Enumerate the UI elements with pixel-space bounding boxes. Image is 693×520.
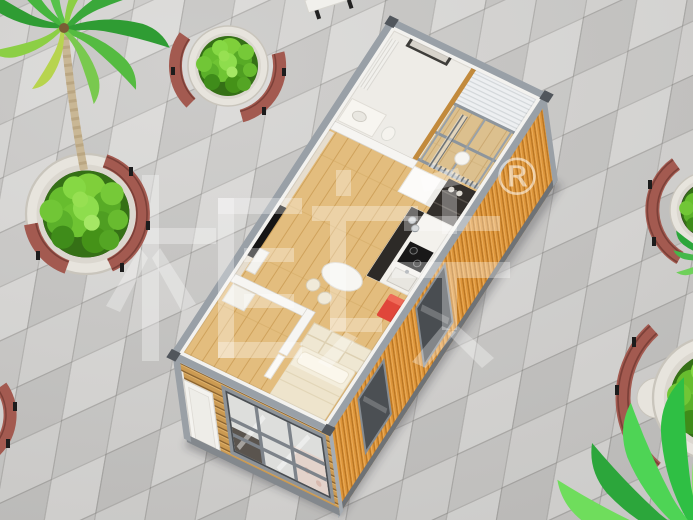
planter-right-upper <box>647 160 693 280</box>
planter-top-center <box>171 26 286 116</box>
bench-top-edge <box>305 0 361 21</box>
registered-mark: ® <box>491 152 543 204</box>
bench-left-edge <box>0 386 17 450</box>
scene-artwork <box>0 0 693 520</box>
planter-top-left <box>0 0 173 274</box>
rendered-scene: ® 柜族 <box>0 0 693 520</box>
palm-tree <box>0 0 173 170</box>
